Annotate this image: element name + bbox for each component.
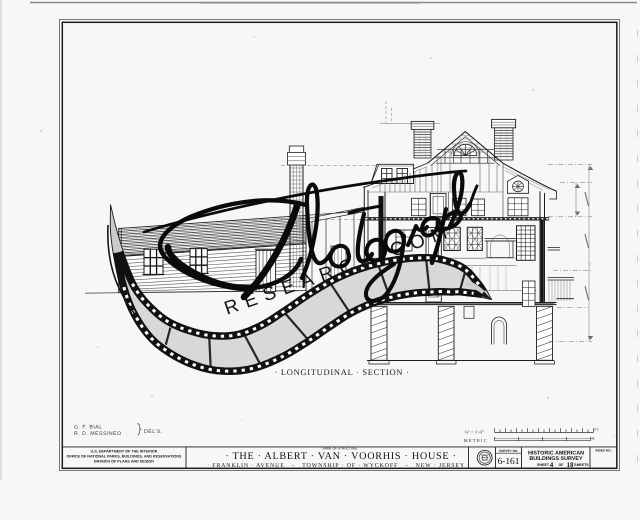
svg-text:U.S. DEPARTMENT OF THE INTERIO: U.S. DEPARTMENT OF THE INTERIOR (91, 449, 158, 453)
svg-text:18: 18 (567, 461, 575, 469)
svg-text:BUILDINGS SURVEY: BUILDINGS SURVEY (529, 456, 583, 462)
svg-text:DEL’S.: DEL’S. (144, 429, 163, 435)
svg-text:BRANCH OF PLANS AND DESIGN: BRANCH OF PLANS AND DESIGN (94, 459, 154, 463)
svg-text:G. F. BIAL: G. F. BIAL (74, 425, 103, 431)
svg-text:· LONGITUDINAL · SECTION ·: · LONGITUDINAL · SECTION · (275, 367, 410, 377)
svg-text:· THE · ALBERT · VAN · VOORHIS: · THE · ALBERT · VAN · VOORHIS · HOUSE · (225, 451, 456, 462)
svg-text:M.: M. (592, 437, 596, 441)
svg-text:· FRANKLIN · AVENUE – TOWNSHIP: · FRANKLIN · AVENUE – TOWNSHIP · OF · WY… (207, 463, 470, 469)
svg-text:OFFICE OF NATIONAL PARKS, BUIL: OFFICE OF NATIONAL PARKS, BUILDINGS, AND… (67, 454, 182, 458)
svg-text:INDEX NO.: INDEX NO. (595, 449, 611, 453)
svg-text:SURVEY NO.: SURVEY NO. (499, 449, 519, 453)
svg-text:OF: OF (559, 463, 565, 467)
svg-text:NAME OF STRUCTURE: NAME OF STRUCTURE (322, 446, 357, 450)
svg-text:R. D. MESSINEO: R. D. MESSINEO (74, 431, 122, 437)
svg-text:SHEETS: SHEETS (574, 463, 589, 467)
svg-text:6-161: 6-161 (498, 457, 520, 467)
svg-text:FT.: FT. (595, 428, 600, 432)
svg-text:¼″ = 1′-0″: ¼″ = 1′-0″ (465, 430, 484, 435)
svg-text:METRIC: METRIC (464, 438, 489, 443)
svg-text:4: 4 (550, 461, 554, 469)
svg-text:SHEET: SHEET (537, 463, 550, 467)
